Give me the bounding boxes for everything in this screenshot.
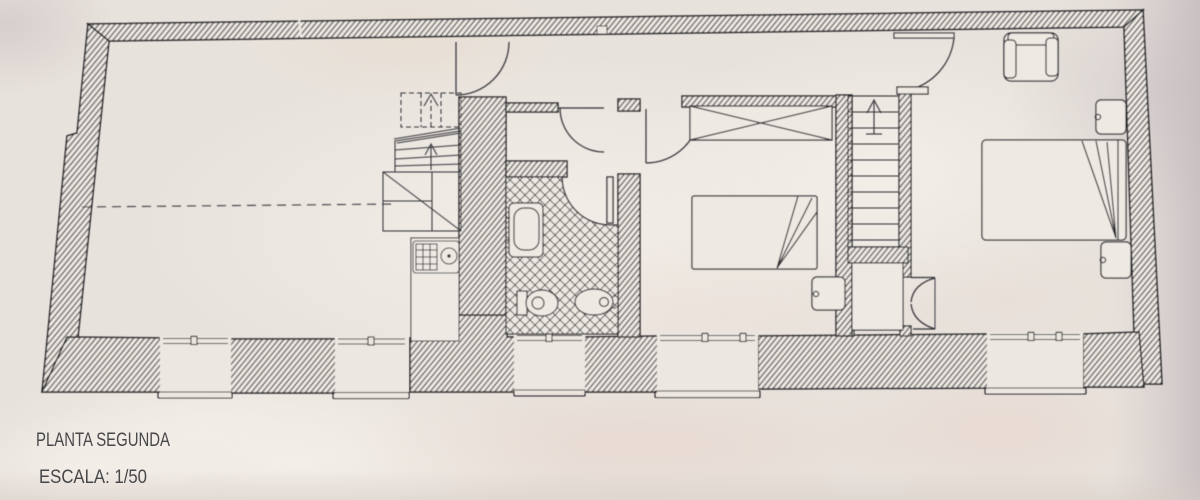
svg-text:ESCALA: 1/50: ESCALA: 1/50 [39,467,147,488]
svg-text:PLANTA SEGUNDA: PLANTA SEGUNDA [36,430,170,451]
